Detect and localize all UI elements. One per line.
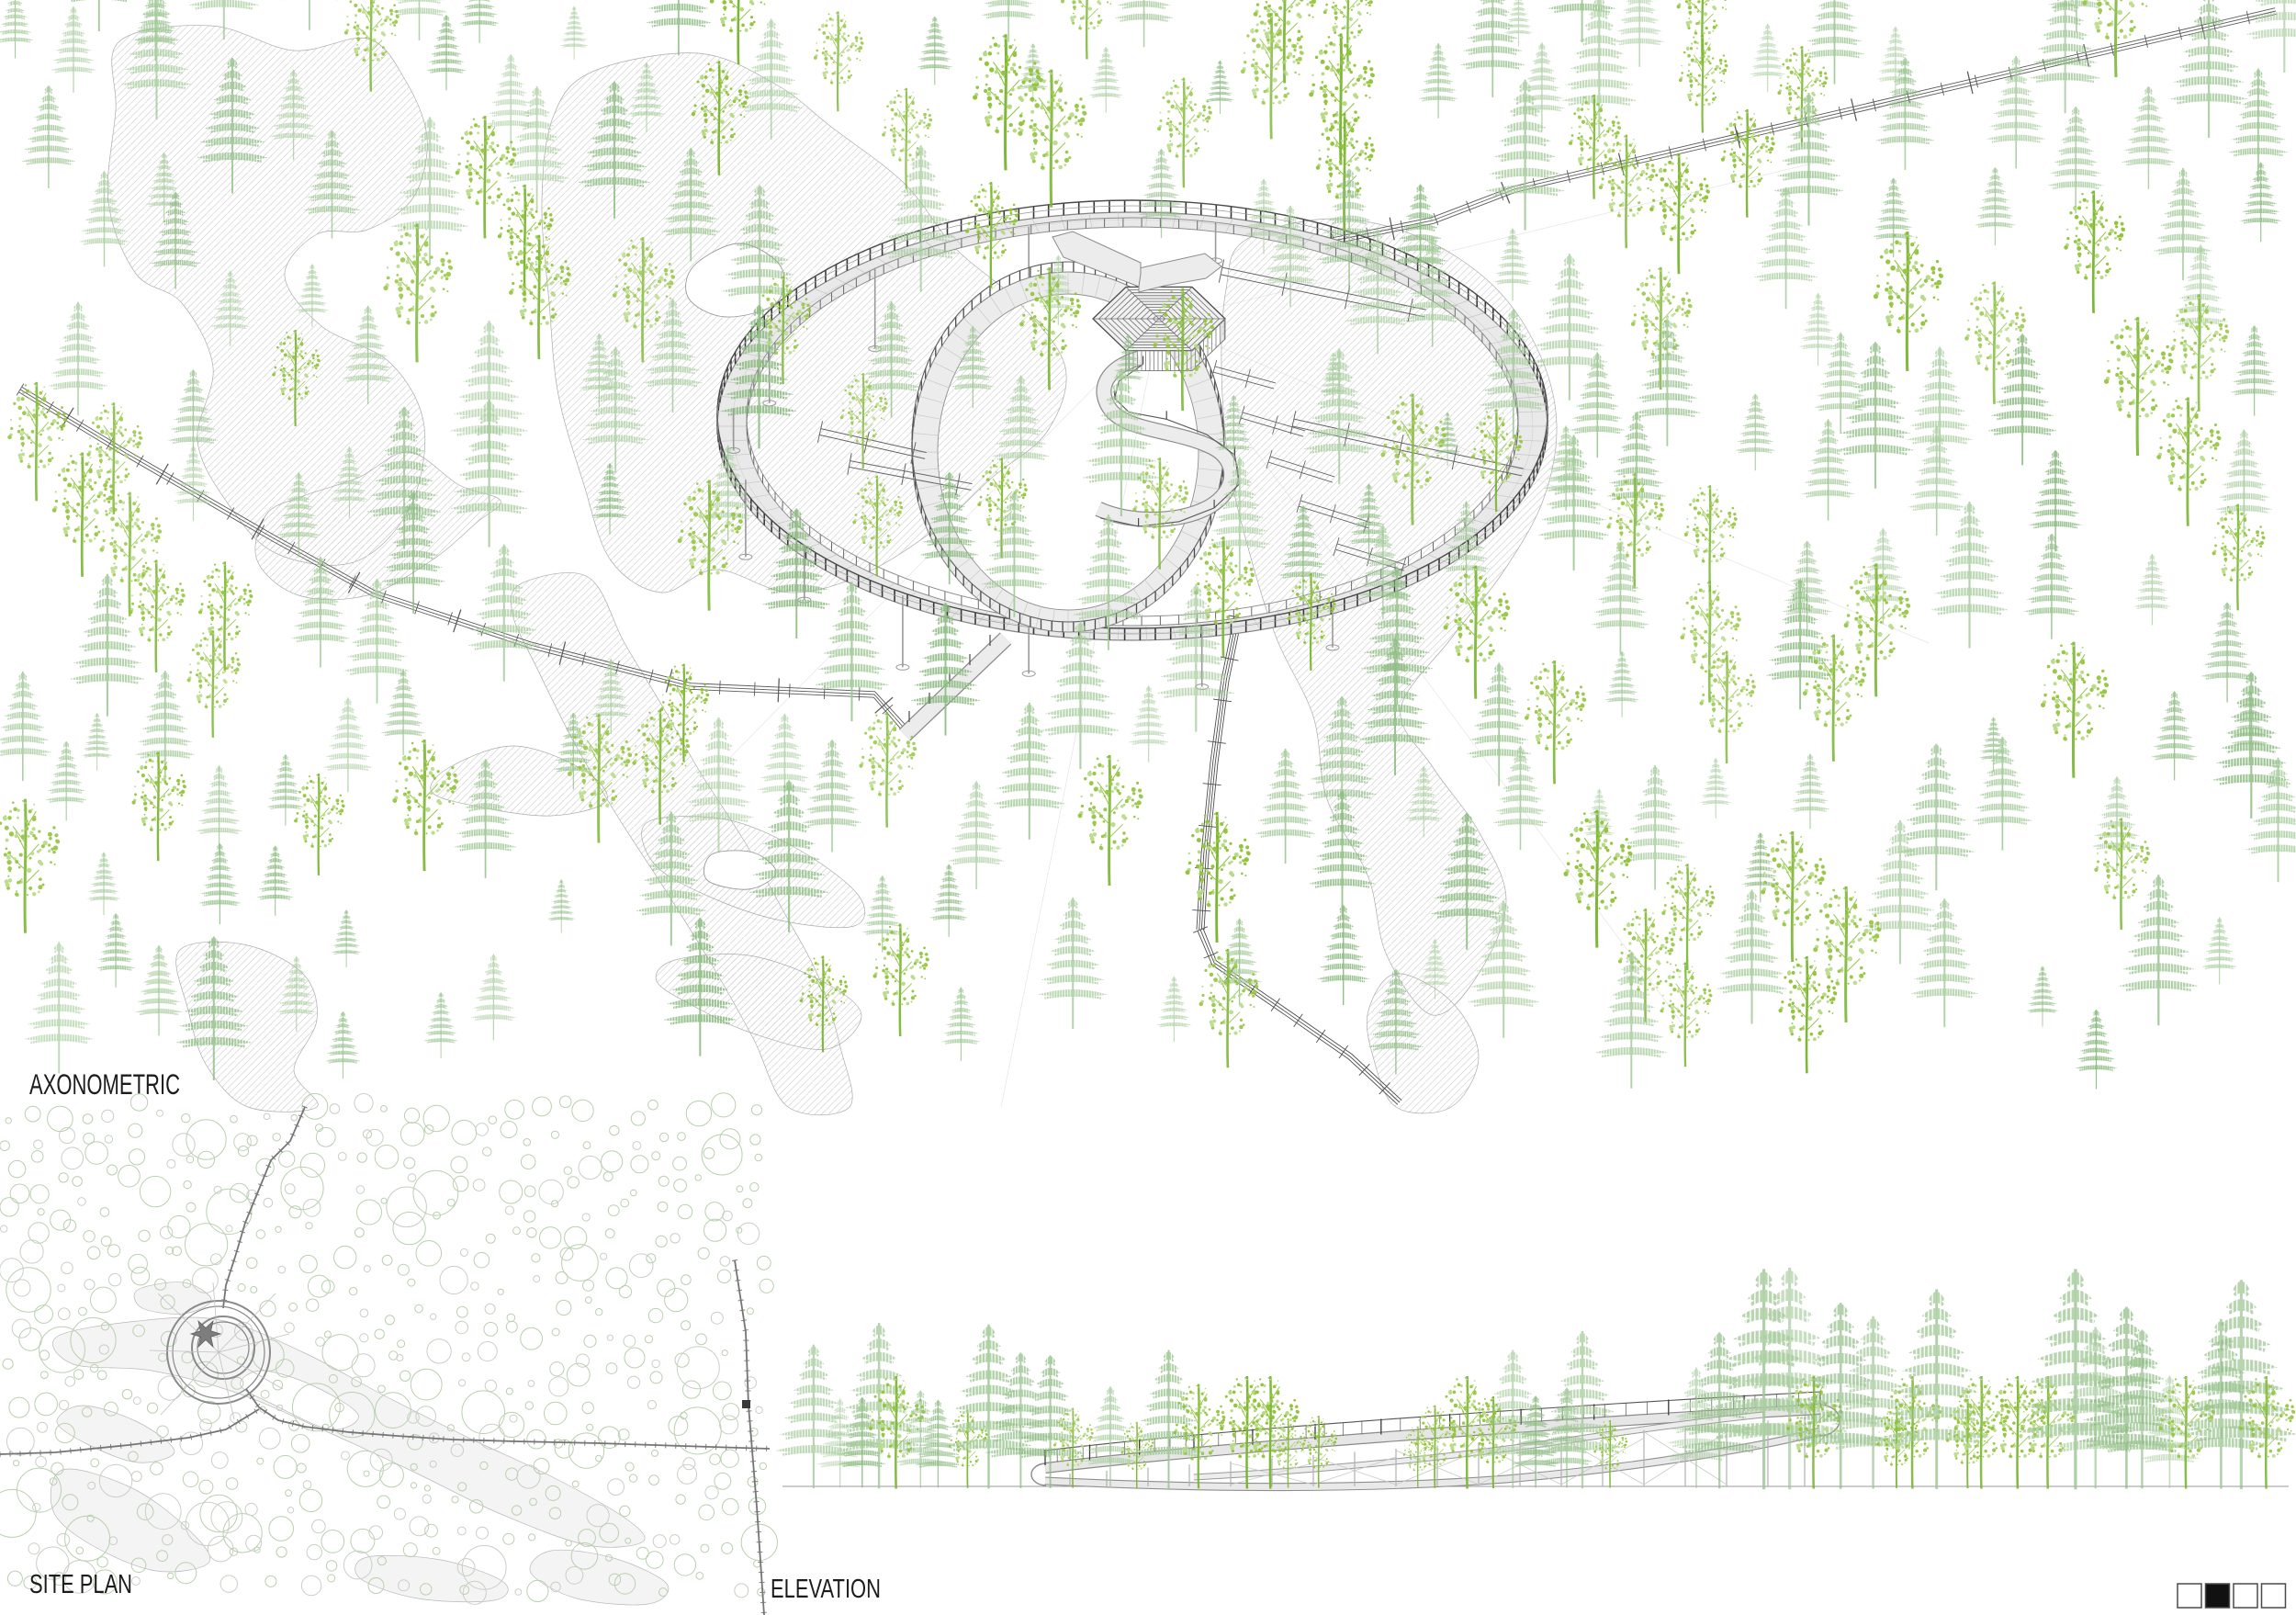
svg-text:AXONOMETRIC: AXONOMETRIC [29,1067,180,1101]
svg-text:SITE PLAN: SITE PLAN [29,1570,132,1599]
svg-text:ELEVATION: ELEVATION [771,1575,881,1604]
